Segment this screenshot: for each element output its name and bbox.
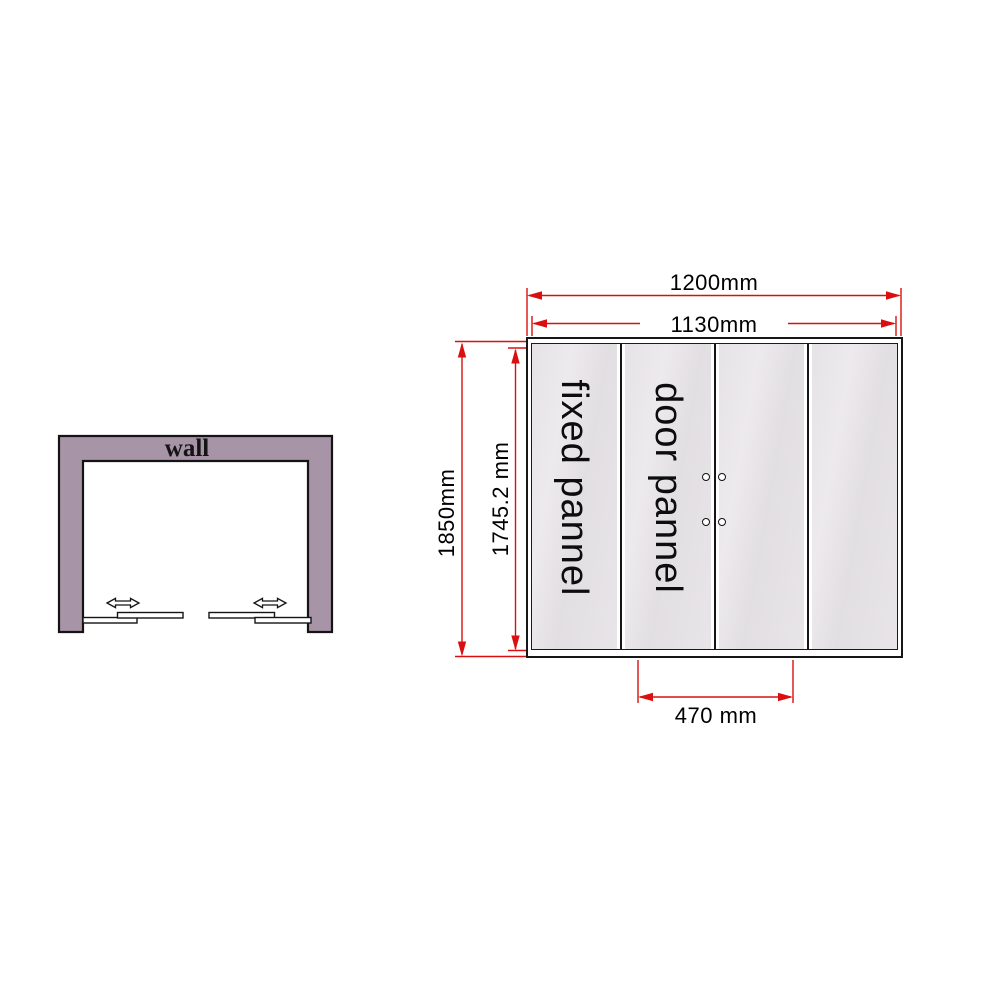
door-handle-knob [718, 473, 727, 482]
wall-outline [59, 436, 332, 632]
dim-1130-arrow-left-icon [532, 319, 547, 327]
dim-1200-arrow-right-icon [886, 291, 901, 299]
door-handle-knob [702, 518, 711, 527]
track-bar-right-door [209, 613, 275, 619]
dim-470-arrow-right-icon [778, 693, 793, 701]
panel-divider-1 [617, 344, 625, 649]
slide-arrow-right-icon [254, 598, 286, 607]
wall-label: wall [157, 436, 217, 462]
track-bar-left-fixed [83, 618, 137, 624]
dim-label-total-height: 1850mm [434, 448, 460, 578]
dim-1130-arrow-right-icon [881, 319, 896, 327]
track-bar-left-door [118, 613, 184, 619]
dim-1200-arrow-left-icon [527, 291, 542, 299]
dim-1850-arrow-top-icon [458, 343, 466, 358]
dim-label-door-width: 470 mm [656, 703, 776, 729]
door-panel-label: door pannel [646, 358, 690, 618]
door-handle-knob [702, 473, 711, 482]
dim-1850-arrow-bottom-icon [458, 642, 466, 657]
glass-panel-fixed-right [812, 344, 897, 649]
dimension-diagram: wall fixed pannel door pannel 1200mm 113… [0, 0, 1000, 1000]
glass-panel-door-right [719, 344, 804, 649]
dim-label-outer-width: 1200mm [654, 270, 774, 296]
dim-1745-arrow-bottom-icon [511, 636, 519, 651]
slide-arrow-left-icon [107, 598, 139, 607]
door-handle-knob [718, 518, 727, 527]
track-bar-right-fixed [255, 618, 311, 624]
dim-label-glass-height: 1745.2 mm [488, 419, 514, 579]
dim-label-inner-width: 1130mm [639, 312, 789, 338]
fixed-panel-label: fixed pannel [552, 358, 596, 618]
dim-470-arrow-left-icon [638, 693, 653, 701]
panel-divider-2 [711, 344, 719, 649]
panel-divider-3 [804, 344, 812, 649]
dim-1745-arrow-top-icon [511, 349, 519, 364]
